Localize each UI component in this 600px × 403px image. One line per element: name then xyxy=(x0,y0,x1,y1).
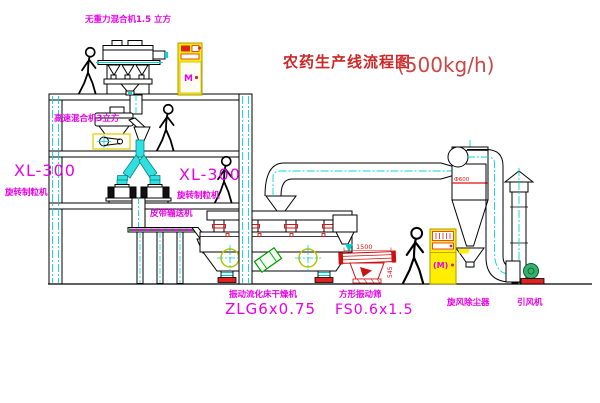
label-screen-name: 方形振动筛 xyxy=(339,289,382,300)
dryer-exhaust-duct xyxy=(265,163,453,196)
fan-motor xyxy=(524,264,539,279)
cad-drawing: M xyxy=(0,0,600,403)
dryer-feet xyxy=(218,271,333,283)
label-high-speed-mixer: 高速混合机3立方 xyxy=(54,113,120,124)
building-column-right xyxy=(239,94,252,284)
worker-second-floor xyxy=(157,105,174,151)
gravity-mixer xyxy=(96,41,168,96)
label-screen-model: FS0.6x1.5 xyxy=(335,302,414,318)
page-title: 农药生产线流程图 xyxy=(282,53,411,71)
cabinet-right-symbol: (M) xyxy=(433,261,448,270)
label-granulator-left-name: 旋转制粒机 xyxy=(4,187,48,198)
label-fan: 引风机 xyxy=(517,297,543,308)
cabinet-top-symbol: M xyxy=(184,74,193,84)
screen-dim-height: 545 xyxy=(387,266,394,278)
worker-top-floor xyxy=(79,48,96,94)
label-granulator-center-model: XL-300 xyxy=(179,165,241,184)
control-cabinet-top: M xyxy=(178,43,202,95)
label-granulator-left-model: XL-300 xyxy=(14,161,76,180)
cyclone-separator: Ф600 xyxy=(448,140,513,282)
granulator-discharge-pipe xyxy=(132,198,145,228)
feed-duct xyxy=(130,95,142,114)
control-cabinet-right: (M) xyxy=(430,229,456,284)
label-dryer-model: ZLG6x0.75 xyxy=(225,300,316,318)
flow-diagram-svg: M xyxy=(0,0,600,403)
label-gravity-mixer: 无重力混合机1.5 立方 xyxy=(84,14,172,25)
label-dryer-name: 振动流化床干燥机 xyxy=(229,289,298,300)
page-title-capacity: (500kg/h) xyxy=(397,53,494,77)
label-belt-conveyor: 皮带输送机 xyxy=(149,208,193,219)
screen-dim-length: 1500 xyxy=(356,243,373,251)
cyclone-flange-dia: Ф600 xyxy=(454,177,470,183)
worker-ground xyxy=(403,228,423,283)
label-granulator-center-name: 旋转制粒机 xyxy=(176,190,220,201)
label-cyclone: 旋风除尘器 xyxy=(446,297,490,308)
